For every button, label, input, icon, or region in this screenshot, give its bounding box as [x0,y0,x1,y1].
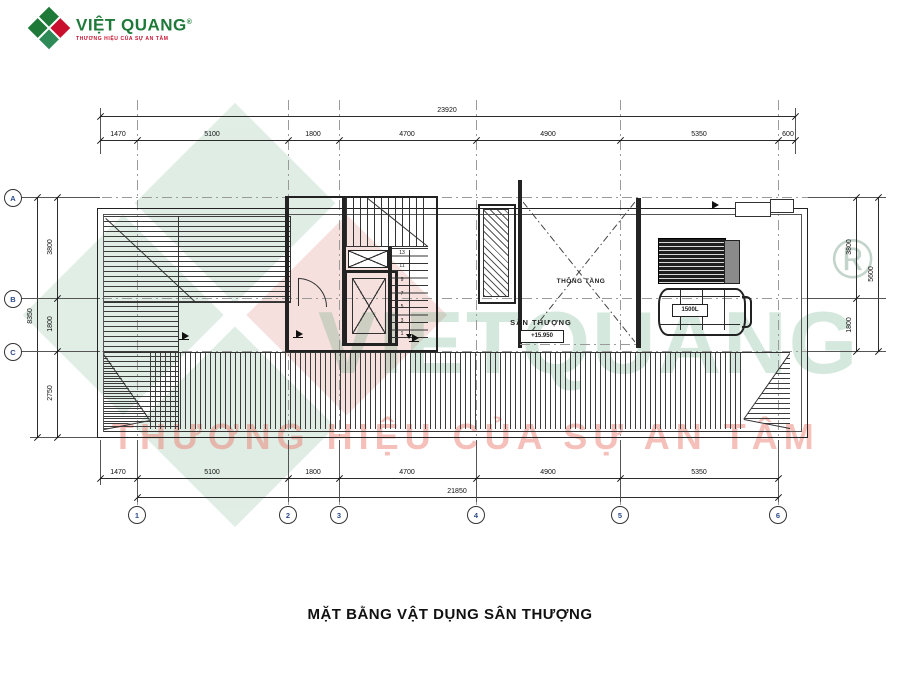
dim-line-left-total [37,197,38,437]
grid-line-row-a [22,197,886,198]
stair-tread-number: 7 [396,291,408,297]
dim-label: 5100 [192,469,232,477]
dim-label: 23920 [427,107,467,115]
void-edge-line [520,344,640,345]
grid-bubble-column-1: 1 [128,506,146,524]
ext-line [808,298,886,299]
stair-tread-number: 1 [396,331,408,337]
ext-line [476,440,477,502]
dim-label: 4700 [387,131,427,139]
dim-line-top-segments [100,140,795,141]
duct-box [348,250,388,268]
dim-label: 3800 [47,227,55,267]
grid-bubble-column-2: 2 [279,506,297,524]
ext-line [21,197,100,198]
ext-line [778,440,779,502]
dim-label: 1470 [98,469,138,477]
dim-line-right-segments [856,197,857,352]
water-tank-capacity-label: 1500L [672,304,708,317]
dim-label: 5350 [679,469,719,477]
grid-bubble-column-3: 3 [330,506,348,524]
ext-line [21,351,100,352]
grid-bubble-column-4: 4 [467,506,485,524]
ext-line [21,298,100,299]
dim-label: 1800 [293,131,333,139]
stair-upper-flight [346,198,428,247]
door-leaf [298,278,299,306]
floor-plan-drawing: 23920 1470 5100 1800 4700 4900 5350 600 … [0,0,900,675]
ext-line [137,440,138,502]
dim-label: 5100 [192,131,232,139]
dim-label: 5600 [868,254,876,294]
ext-line [339,440,340,502]
grid-bubble-row-c: C [4,343,22,361]
stair-tread-number: 13 [396,250,408,256]
ext-line [288,440,289,502]
grid-bubble-column-6: 6 [769,506,787,524]
dim-line-right-total [878,197,879,352]
dim-label: 5350 [679,131,719,139]
grid-bubble-row-a: A [4,189,22,207]
ext-line [808,197,886,198]
dim-label: 21850 [437,488,477,496]
wall [636,198,641,348]
dim-label: 4900 [528,131,568,139]
dim-label: 1800 [293,469,333,477]
parapet-post [770,199,794,213]
tank-band [660,324,740,325]
skylight-glass-hatch [483,209,509,297]
dim-line-bottom-total [137,497,778,498]
dim-label: 2750 [47,373,55,413]
dim-label: 8350 [27,296,35,336]
dim-line-top-total [100,116,795,117]
ext-line [808,351,886,352]
stair-tread-number: 9 [396,277,408,283]
elevator-cab-cross-icon [352,278,386,334]
louver-unit [658,238,726,284]
terrace-label: SÂN THƯỢNG [498,318,584,327]
tank-end-cap [742,296,752,328]
grid-bubble-column-5: 5 [611,506,629,524]
stair-run-line [409,250,410,336]
dim-label: 1800 [47,304,55,344]
louver-end-cap [724,240,740,284]
dim-label: 1800 [846,305,854,345]
roof-hatch-lower-field [150,353,744,429]
tank-band [660,296,740,297]
dim-label: 3800 [846,227,854,267]
dim-label: 4700 [387,469,427,477]
blueprint-page: VIETQUANG ® THƯƠNG HIỆU CỦA SỰ AN TÂM 23… [0,0,900,675]
parapet-post [735,202,771,217]
ext-line [620,440,621,502]
ext-line [30,437,100,438]
dim-line-bottom-segments [100,478,778,479]
dim-label: 4900 [528,469,568,477]
dim-line-left-segments [57,197,58,437]
dim-label: 1470 [98,131,138,139]
void-label: THÔNG TẦNG [536,278,626,285]
stair-tread-number: 11 [396,263,408,269]
dim-label: 600 [768,131,808,139]
stair-tread-number: 5 [396,304,408,310]
grid-bubble-row-b: B [4,290,22,308]
terrace-elevation-badge: +15.950 [520,330,564,343]
stair-tread-number: 3 [396,318,408,324]
